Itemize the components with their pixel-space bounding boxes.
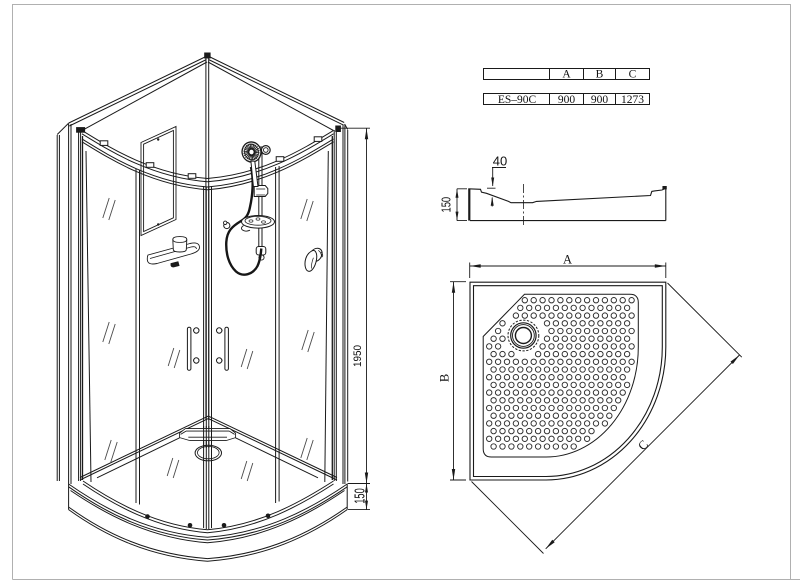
svg-text:40: 40 xyxy=(493,153,507,168)
svg-text:900: 900 xyxy=(558,94,576,106)
svg-text:A: A xyxy=(563,252,572,266)
svg-text:C: C xyxy=(629,69,637,81)
svg-text:A: A xyxy=(562,69,571,81)
svg-text:ES–90C: ES–90C xyxy=(498,94,537,106)
svg-text:B: B xyxy=(438,374,452,382)
svg-text:1950: 1950 xyxy=(353,345,365,367)
svg-text:900: 900 xyxy=(591,94,609,106)
svg-text:150: 150 xyxy=(351,488,368,504)
svg-text:B: B xyxy=(596,69,604,81)
svg-text:1273: 1273 xyxy=(621,94,644,106)
svg-text:150: 150 xyxy=(440,197,454,213)
